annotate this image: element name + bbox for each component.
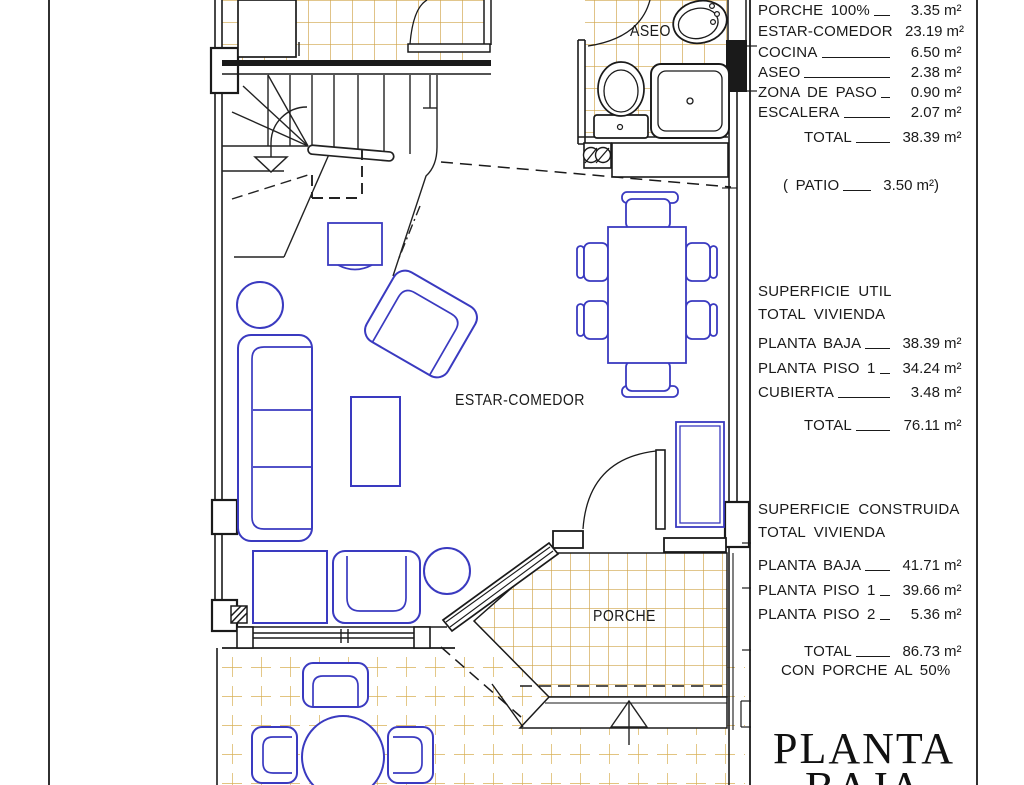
front-wall-left	[553, 531, 583, 548]
terrace-chair-left	[252, 727, 297, 783]
porch-note: CON PORCHE AL 50%	[781, 662, 950, 679]
door-leaf	[656, 450, 665, 529]
superficie-construida-subtitle: TOTAL VIVIENDA	[758, 524, 885, 541]
area-total-row: TOTAL86.73m²	[758, 642, 971, 660]
coffee-table	[351, 397, 400, 486]
room-label-estar-comedor: ESTAR-COMEDOR	[455, 392, 585, 410]
superficie-util-subtitle: TOTAL VIVIENDA	[758, 306, 885, 323]
area-row: CUBIERTA3.48m²	[758, 383, 971, 401]
dining-table	[608, 227, 686, 363]
wall-pier-upper-left	[211, 48, 238, 93]
bay-armchair	[333, 551, 420, 623]
faucet-dot	[715, 12, 720, 17]
terrace-table	[302, 716, 384, 785]
washer-symbol	[584, 143, 612, 168]
area-row: ZONA DE PASO0.90m²	[758, 83, 971, 101]
area-row: PLANTA BAJA38.39m²	[758, 334, 971, 352]
room-label-porche: PORCHE	[593, 608, 656, 626]
bay-furniture	[253, 548, 470, 623]
terrace-chair-top	[303, 663, 368, 707]
superficie-util-title: SUPERFICIE UTIL	[758, 283, 892, 300]
area-row: PORCHE 100%3.35m²	[758, 1, 971, 19]
armchair-rotated	[360, 266, 481, 382]
terrace-chair-right	[388, 727, 433, 783]
area-row: ESCALERA2.07m²	[758, 103, 971, 121]
hall-cabinet	[676, 422, 724, 527]
faucet-dot	[711, 20, 716, 25]
counter	[612, 143, 728, 177]
bay-window	[222, 627, 455, 648]
cut-line	[399, 206, 420, 258]
area-row: PLANTA PISO 25.36m²	[758, 605, 971, 623]
room-label-aseo: ASEO	[630, 23, 671, 41]
area-row: COCINA6.50m²	[758, 43, 971, 61]
sofa	[238, 335, 312, 541]
dining-set	[577, 192, 717, 397]
floor-plan-sheet: ASEO ESTAR-COMEDOR PORCHE PORCHE 100%3.3…	[0, 0, 1024, 785]
wall-pier-mid-left	[212, 500, 237, 534]
area-schedule-column: PORCHE 100%3.35m² ESTAR-COMEDOR23.19m² C…	[751, 0, 977, 785]
front-door	[583, 450, 665, 529]
side-table	[237, 282, 283, 328]
shower-tray	[651, 64, 729, 138]
square-table	[253, 551, 327, 623]
wall-pier-door-right	[725, 502, 749, 547]
understair-line	[284, 152, 330, 257]
tv-unit	[328, 223, 382, 270]
superficie-construida-title: SUPERFICIE CONSTRUIDA	[758, 501, 960, 518]
front-wall-right	[664, 538, 726, 552]
area-row: PLANTA PISO 139.66m²	[758, 581, 971, 599]
handrail	[308, 145, 394, 161]
toilet	[594, 62, 648, 138]
area-row: ASEO2.38m²	[758, 63, 971, 81]
direction-arrow	[255, 107, 307, 172]
door-arc	[583, 451, 656, 529]
section-symbol	[231, 606, 247, 623]
area-total-row: TOTAL76.11m²	[758, 416, 971, 434]
faucet-dot	[710, 4, 715, 9]
kitchen-cabinet	[238, 0, 296, 57]
patio-row: ( PATIO3.50m²)	[783, 176, 939, 194]
sheet-title: PLANTA BAJA	[751, 729, 977, 785]
round-side-table	[424, 548, 470, 594]
stair-flight-edge	[393, 108, 437, 276]
kitchen-door-leaf	[408, 44, 490, 52]
area-row: ESTAR-COMEDOR23.19m²	[758, 22, 971, 40]
area-row: PLANTA BAJA41.71m²	[758, 556, 971, 574]
area-total-row: TOTAL38.39m²	[758, 128, 971, 146]
area-row: PLANTA PISO 134.24m²	[758, 359, 971, 377]
